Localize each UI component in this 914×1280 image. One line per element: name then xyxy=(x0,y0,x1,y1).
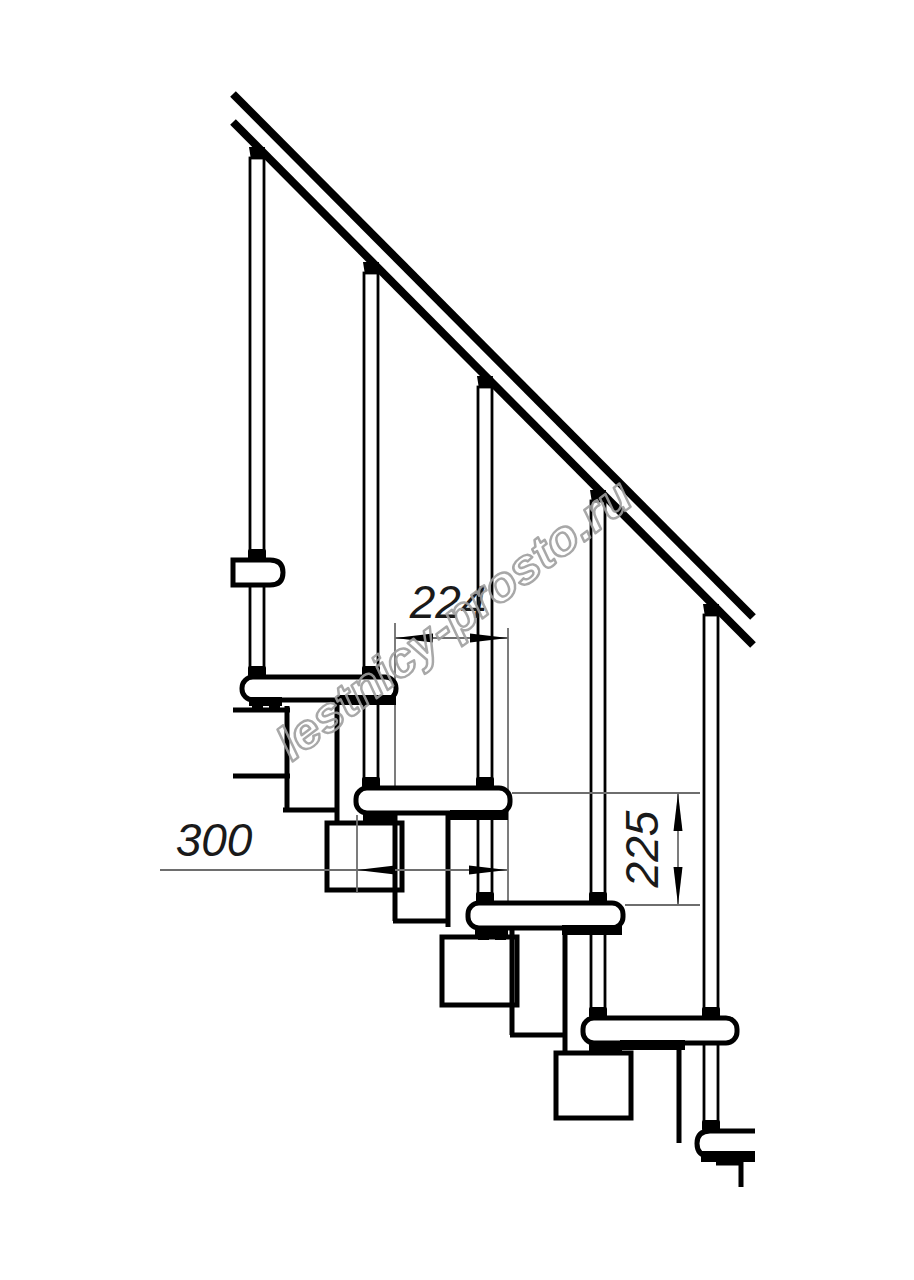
tread5-cut-line xyxy=(716,1163,741,1187)
tread-2 xyxy=(356,788,510,813)
staircase-drawing-canvas: 224 300 225 xyxy=(0,0,914,1280)
collar-b1-tread1 xyxy=(248,666,266,677)
baluster-3 xyxy=(478,387,492,903)
collar-b3-tread3 xyxy=(476,892,494,903)
dim225-arrow-down xyxy=(674,867,683,905)
tread-3 xyxy=(468,903,623,928)
collar-b4-tread3 xyxy=(589,892,607,903)
dim225-arrow-up xyxy=(674,793,683,831)
staircase-technical-drawing: 224 300 225 xyxy=(0,0,914,1280)
collar-b2-tread2 xyxy=(362,777,380,788)
stringer-box-3 xyxy=(556,1053,631,1118)
baluster-4 xyxy=(591,501,605,1018)
collar-b3-tread2 xyxy=(476,777,494,788)
dim300-label: 300 xyxy=(176,814,253,866)
tread4-plate xyxy=(620,1040,685,1050)
tread-4 xyxy=(583,1018,737,1043)
stringer-box-2 xyxy=(442,937,517,1005)
tread5-plate xyxy=(701,1151,755,1162)
collar-b1-bracket xyxy=(248,549,266,560)
stringer-box-1 xyxy=(327,823,402,890)
collar-b5-tread5 xyxy=(702,1120,720,1131)
watermark-text: lestnicy-prosto.ru xyxy=(266,469,641,770)
baluster-1 xyxy=(250,158,264,677)
dim225-label: 225 xyxy=(616,810,668,888)
upper-bracket xyxy=(233,560,283,585)
baluster-5 xyxy=(704,615,718,1131)
tread3-plate xyxy=(562,925,622,935)
collar-b5-tread4 xyxy=(702,1007,720,1018)
tread2-plate xyxy=(450,810,508,820)
collar-b4-tread4 xyxy=(589,1007,607,1018)
